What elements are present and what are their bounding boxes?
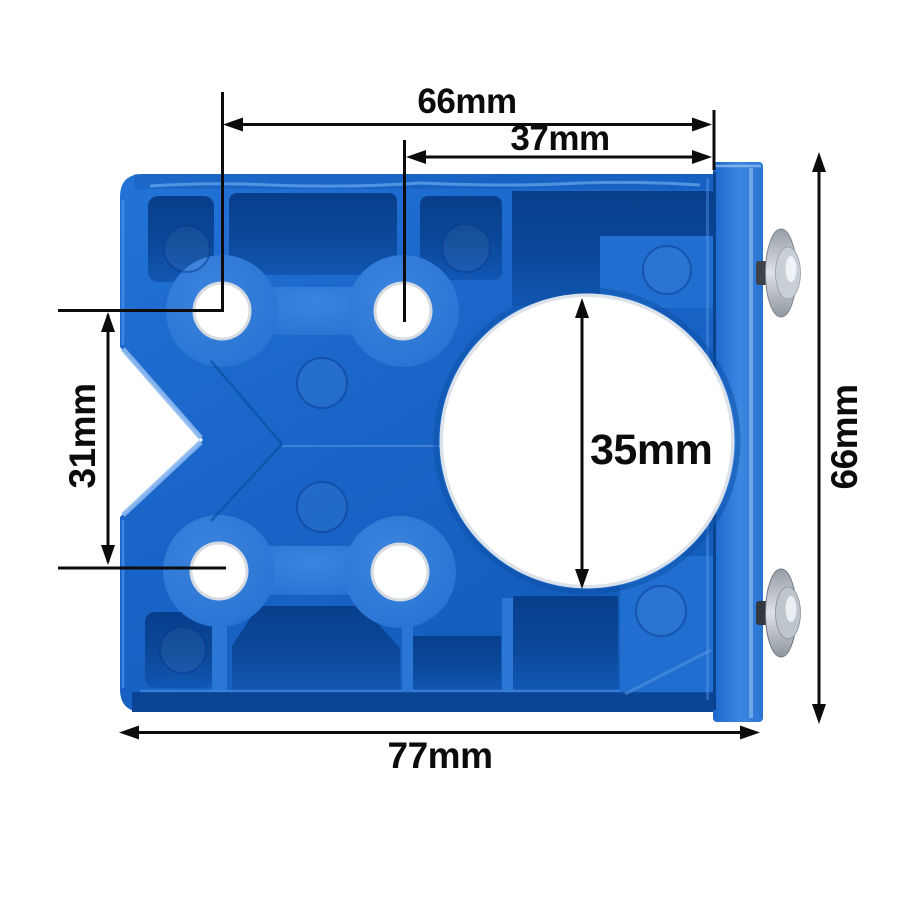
arrowhead-down (812, 704, 826, 724)
hole-bore (193, 545, 246, 598)
arrowhead-up (101, 312, 115, 332)
arrowhead-right (692, 150, 712, 164)
arrowhead-right (692, 118, 712, 132)
label-bottom-width: 77mm (388, 735, 493, 776)
label-right-height: 66mm (824, 385, 865, 490)
arrowhead-left (406, 150, 426, 164)
emboss-circle-2 (442, 224, 490, 272)
emboss-circle-5 (297, 482, 347, 532)
hole-bore (374, 546, 427, 599)
emboss-circle-3 (643, 246, 691, 294)
emboss-circle-6 (636, 586, 686, 636)
screw-dome-highlight (786, 256, 797, 282)
product-dimension-diagram: 66mm 37mm 31mm 35mm 66mm 77mm (0, 0, 900, 900)
guide-hole-bottom-left (190, 542, 249, 601)
plate-bottom-band (132, 692, 715, 712)
rib-bottom-3 (502, 598, 513, 690)
dim-left-pitch (101, 312, 115, 565)
emboss-circle-7 (160, 627, 206, 673)
arrowhead-down (101, 545, 115, 565)
arrowhead-up (812, 152, 826, 172)
emboss-circle-1 (164, 226, 210, 272)
jig-diagram-canvas: 66mm 37mm 31mm 35mm 66mm 77mm (0, 0, 900, 900)
guide-hole-bottom-right (371, 543, 430, 602)
rib-bottom-1 (212, 616, 227, 690)
label-left-height: 31mm (62, 384, 103, 489)
pocket-bottom-right (513, 596, 618, 690)
arrowhead-left (119, 726, 139, 740)
screw-dome-highlight (786, 596, 797, 622)
arrowhead-right (740, 726, 760, 740)
emboss-circle-4 (297, 358, 347, 408)
pocket-bottom-mid2 (413, 636, 501, 690)
label-top-width: 66mm (417, 82, 516, 121)
label-bore-diameter: 35mm (590, 426, 712, 474)
arrowhead-left (223, 118, 243, 132)
pocket-top-mid (229, 193, 397, 275)
label-inner-width: 37mm (510, 119, 609, 158)
